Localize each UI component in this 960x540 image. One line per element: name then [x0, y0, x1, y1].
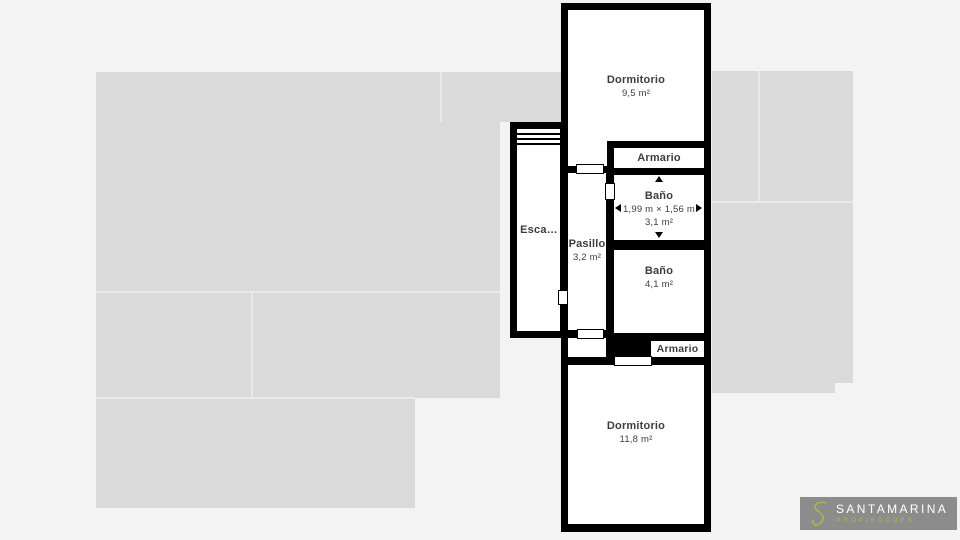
dimension-arrow-up-icon	[655, 176, 663, 182]
silhouette-seam	[251, 291, 253, 398]
silhouette-seam	[96, 291, 500, 293]
room-name: Dormitorio	[566, 420, 706, 433]
room-label-bano-top: Baño 1,99 m × 1,56 m 3,1 m²	[589, 190, 729, 229]
door-pasillo-bottom	[577, 329, 604, 339]
adjacent-floor-silhouette	[712, 71, 835, 393]
adjacent-floor-silhouette	[835, 71, 853, 383]
door-pasillo-top	[576, 164, 604, 174]
brand-tagline: PROPIEDADES	[836, 517, 948, 525]
room-label-bano-bottom: Baño 4,1 m²	[589, 265, 729, 291]
room-label-armario-bottom: Armario	[647, 341, 708, 357]
logo-box: SANTAMARINA PROPIEDADES	[800, 497, 957, 530]
room-name: Dormitorio	[566, 74, 706, 87]
brand-name: SANTAMARINA	[836, 503, 948, 516]
room-label-pasillo: Pasillo 3,2 m²	[547, 238, 627, 264]
santamarina-s-icon	[807, 500, 831, 528]
room-area: 3,1 m²	[589, 216, 729, 229]
room-area: 4,1 m²	[589, 278, 729, 291]
stair-tread-line	[517, 133, 560, 135]
adjacent-floor-silhouette	[96, 72, 562, 122]
room-area: 3,2 m²	[547, 251, 627, 264]
room-area: 11,8 m²	[566, 433, 706, 446]
dimension-arrow-down-icon	[655, 232, 663, 238]
stair-tread-line	[517, 138, 560, 140]
silhouette-seam	[96, 397, 415, 399]
door-escalera	[558, 290, 568, 305]
room-name: Armario	[614, 148, 704, 168]
room-name: Esca…	[509, 224, 569, 237]
silhouette-seam	[440, 72, 442, 122]
logo-text-block: SANTAMARINA PROPIEDADES	[836, 503, 948, 525]
room-area: 9,5 m²	[566, 87, 706, 100]
room-label-dormitorio-bottom: Dormitorio 11,8 m²	[566, 420, 706, 446]
floorplan-canvas: Dormitorio 9,5 m² Armario Baño 1,99 m × …	[0, 0, 960, 540]
room-name: Pasillo	[547, 238, 627, 251]
room-vestibule	[568, 338, 606, 357]
room-label-armario-top: Armario	[614, 148, 704, 168]
silhouette-seam	[758, 71, 760, 201]
room-label-escalera: Esca…	[509, 224, 569, 237]
room-name: Armario	[647, 341, 708, 357]
room-bano-bottom	[614, 250, 704, 333]
room-name: Baño	[589, 265, 729, 278]
room-label-dormitorio-top: Dormitorio 9,5 m²	[566, 74, 706, 100]
silhouette-seam	[712, 201, 853, 203]
door-dormitorio-bottom	[614, 356, 652, 366]
room-dimensions: 1,99 m × 1,56 m	[589, 203, 729, 216]
adjacent-floor-silhouette	[96, 398, 415, 508]
stair-tread-line	[517, 143, 560, 145]
adjacent-floor-silhouette	[96, 122, 500, 398]
room-name: Baño	[589, 190, 729, 203]
